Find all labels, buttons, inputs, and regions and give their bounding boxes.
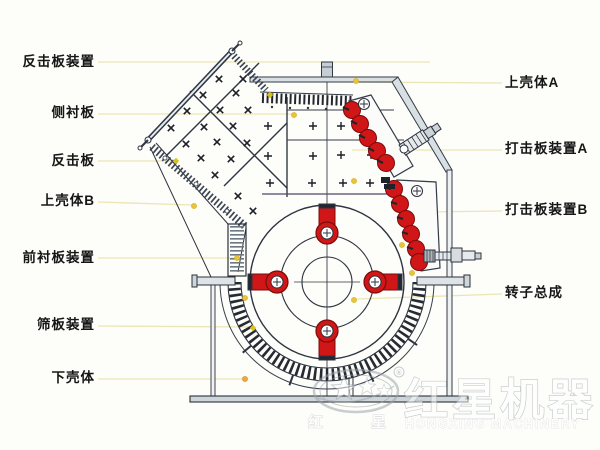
striking-plate-rack-b (381, 177, 481, 271)
label-impact-plate-assembly: 反击板装置 (0, 54, 95, 70)
striking-plate-rack-a (343, 95, 442, 177)
hatched-bar-upper (234, 56, 266, 90)
blow-bar-right (364, 271, 402, 293)
blow-bar-top (316, 204, 338, 244)
roof-plate (250, 77, 398, 82)
label-upper-casing-a: 上壳体A (505, 75, 600, 91)
label-striking-plate-assembly-a: 打击板装置A (505, 141, 600, 157)
rotor-assembly (248, 204, 404, 360)
label-lower-casing: 下壳体 (0, 370, 95, 386)
label-impact-plate: 反击板 (0, 153, 95, 169)
stamp-char-right: 星 (371, 414, 386, 431)
stamp-char-left: 红 (308, 413, 323, 431)
front-liner (228, 224, 246, 276)
label-striking-plate-assembly-b: 打击板装置B (505, 202, 600, 218)
adjusting-bolt-b (424, 248, 481, 262)
registered-mark: ® (396, 369, 402, 377)
label-rotor-assembly: 转子总成 (505, 285, 600, 301)
blow-bar-left (248, 271, 288, 293)
blow-bar-bottom (316, 320, 338, 360)
label-screen-plate-assembly: 筛板装置 (0, 317, 95, 333)
x-marks (168, 76, 256, 214)
chain-curtain (260, 92, 353, 110)
label-front-liner-assembly: 前衬板装置 (0, 250, 95, 266)
feed-chute (138, 41, 287, 277)
top-bolt (322, 62, 333, 77)
label-upper-casing-b: 上壳体B (0, 193, 95, 209)
diagram-stage: ® 红星机器 HONGXING MACHINERY 红 星 反击板装置 侧衬板 … (0, 0, 600, 450)
right-platform (417, 277, 466, 285)
label-side-liner: 侧衬板 (0, 105, 95, 121)
brand-text-en: HONGXING MACHINERY (405, 417, 581, 431)
left-platform (195, 277, 235, 285)
left-leg (211, 285, 215, 396)
